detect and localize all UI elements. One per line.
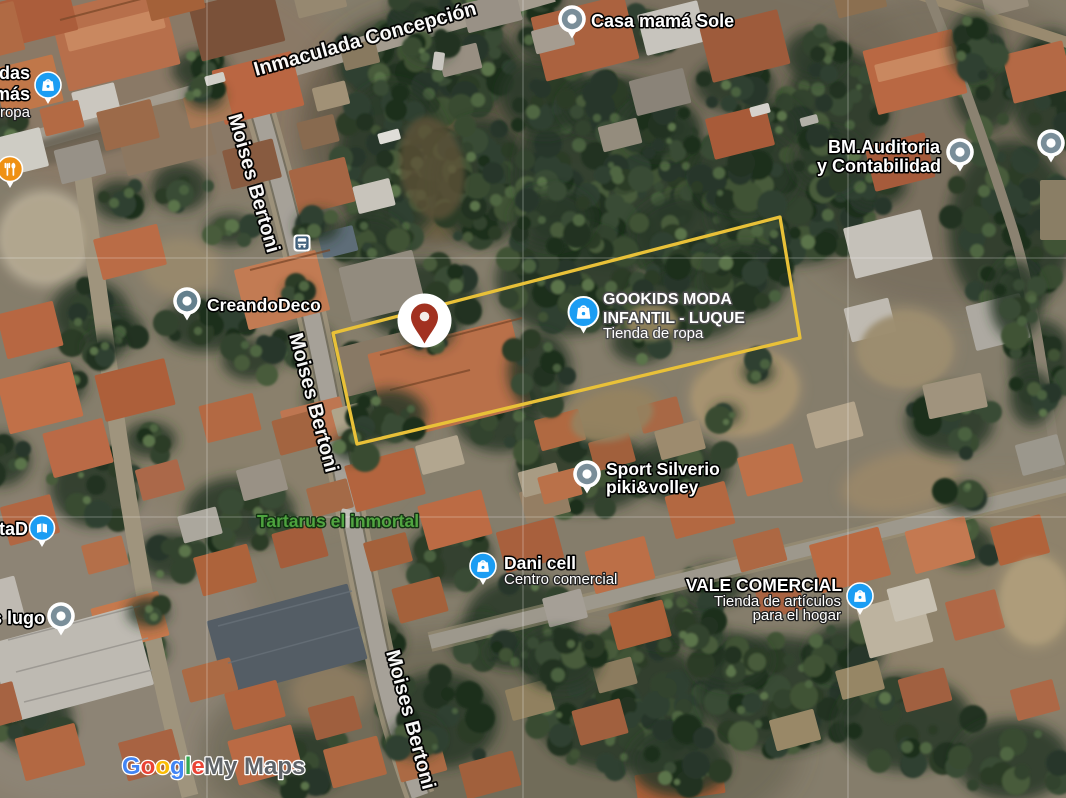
svg-text:Sport Silverio: Sport Silverio (606, 459, 720, 479)
svg-text:GOOKIDS MODA: GOOKIDS MODA (603, 291, 732, 308)
svg-text:My Maps: My Maps (204, 753, 305, 780)
svg-text:taD: taD (0, 519, 28, 539)
svg-text:Tienda de ropa: Tienda de ropa (603, 325, 704, 342)
svg-text:piki&volley: piki&volley (606, 477, 699, 497)
svg-text:CreandoDeco: CreandoDeco (207, 295, 321, 315)
svg-text:más: más (0, 84, 30, 104)
svg-text:Centro comercial: Centro comercial (504, 571, 617, 588)
svg-text:s lugo: s lugo (0, 608, 45, 628)
svg-text:VALE COMERCIAL: VALE COMERCIAL (686, 575, 843, 595)
svg-text:Google: Google (122, 753, 205, 780)
svg-text:das: das (0, 63, 30, 83)
svg-text:y Contabilidad: y Contabilidad (817, 156, 941, 176)
svg-text:para el hogar: para el hogar (753, 607, 841, 624)
svg-text:ropa: ropa (0, 104, 31, 121)
svg-text:BM.Auditoria: BM.Auditoria (828, 137, 941, 157)
svg-text:Dani cell: Dani cell (504, 553, 576, 573)
svg-text:Tartarus el inmortal: Tartarus el inmortal (257, 511, 419, 531)
svg-text:Casa mamá Sole: Casa mamá Sole (591, 11, 734, 31)
